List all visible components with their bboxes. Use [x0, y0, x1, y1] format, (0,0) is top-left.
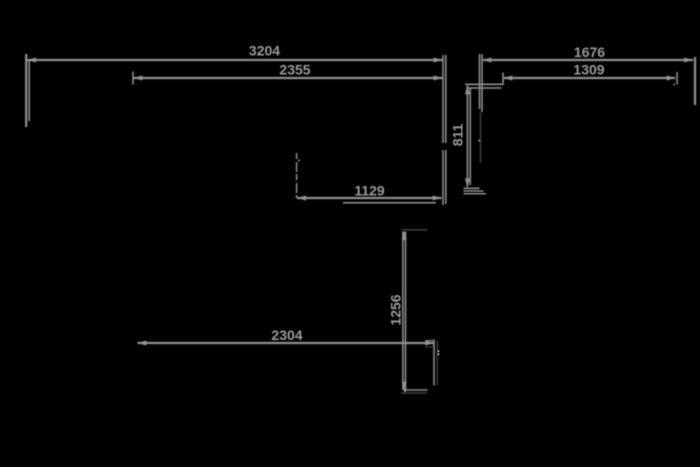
- svg-text:1256: 1256: [388, 294, 404, 325]
- svg-text:1309: 1309: [573, 62, 604, 78]
- svg-text:3204: 3204: [249, 43, 280, 59]
- svg-text:1676: 1676: [574, 44, 605, 60]
- svg-text:1129: 1129: [354, 183, 385, 199]
- svg-text:811: 811: [450, 123, 466, 146]
- svg-text:2355: 2355: [279, 62, 310, 78]
- svg-text:2304: 2304: [271, 327, 302, 343]
